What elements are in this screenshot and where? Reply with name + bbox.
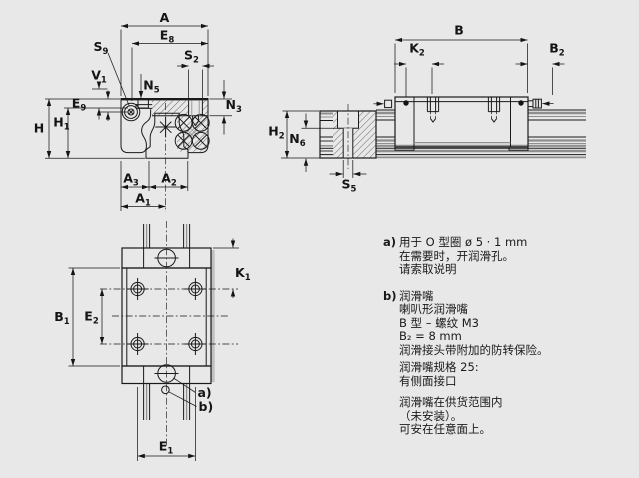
dim-label-S9: S9	[94, 39, 109, 57]
dim-label-A3: A3	[123, 171, 139, 189]
dim-label-B2: B2	[549, 41, 565, 59]
top-carriage	[100, 248, 238, 394]
rail-end-section	[320, 104, 376, 169]
note-b-line: B₂ = 8 mm	[399, 330, 637, 344]
catalog-dimension-drawing-page: A E8 S9 S2 V1 N5 N3 E9 H H1 A3 A2 A1	[0, 0, 639, 478]
side-view: B K2 B2 H2 N6 S5	[268, 23, 586, 195]
mounting-screw-1	[427, 97, 438, 122]
dim-label-N3: N3	[226, 97, 242, 115]
note-b-spec-line: 润滑嘴规格 25:	[399, 361, 637, 375]
callout-a-label: a)	[198, 385, 212, 400]
note-b-scope-line: 润滑嘴在供货范围内	[399, 396, 637, 410]
top-dim-labels: B1 E2 K1 E1 a) b)	[54, 265, 250, 457]
dim-label-E8: E8	[160, 28, 175, 46]
note-a-marker: a)	[383, 236, 399, 277]
note-b-spec-line: 有侧面接口	[399, 375, 637, 389]
dim-label-H2: H2	[268, 124, 284, 142]
top-rail	[144, 221, 190, 448]
note-b-scope-line: （未安装）。	[399, 410, 637, 424]
side-carriage	[374, 97, 554, 150]
callout-b-label: b)	[199, 399, 214, 414]
dim-label-A: A	[160, 10, 170, 25]
dim-label-E2: E2	[84, 309, 99, 327]
side-port-circle	[162, 386, 170, 394]
note-a-line: 在需要时，开润滑孔。	[399, 250, 637, 264]
dim-label-K1: K1	[235, 265, 251, 283]
top-view: B1 E2 K1 E1 a) b)	[54, 221, 250, 461]
note-b: b) 润滑嘴 喇叭形润滑嘴 B 型 – 螺纹 M3 B₂ = 8 mm 润滑接头…	[383, 290, 637, 358]
note-b-marker: b)	[383, 290, 399, 358]
side-dim-labels: B K2 B2 H2 N6 S5	[268, 23, 565, 195]
dim-label-N5: N5	[143, 78, 159, 96]
reference-hole-right	[518, 100, 523, 105]
dim-label-H1: H1	[53, 115, 69, 133]
front-section-view: A E8 S9 S2 V1 N5 N3 E9 H H1 A3 A2 A1	[34, 10, 242, 212]
side-lube-port	[385, 100, 392, 107]
note-b-line: B 型 – 螺纹 M3	[399, 317, 637, 331]
notes-panel: a) 用于 O 型圈 ø 5 · 1 mm 在需要时，开润滑孔。 请索取说明 b…	[383, 236, 637, 437]
mounting-screw-2	[488, 97, 499, 122]
note-b-scope-line: 可安在任意面上。	[399, 423, 637, 437]
dim-label-H: H	[34, 121, 44, 136]
dim-label-N6: N6	[289, 131, 305, 149]
dim-label-B: B	[454, 23, 464, 38]
dim-label-A2: A2	[161, 171, 177, 189]
note-b-scope: 润滑嘴在供货范围内 （未安装）。 可安在任意面上。	[399, 396, 637, 437]
note-b-spec: 润滑嘴规格 25: 有侧面接口	[399, 361, 637, 388]
dim-label-S5: S5	[342, 177, 357, 195]
dim-label-E1: E1	[159, 439, 174, 457]
note-b-line: 喇叭形润滑嘴	[399, 303, 637, 317]
reference-hole-left	[403, 100, 408, 105]
dim-label-E9: E9	[72, 96, 87, 114]
front-dim-labels: A E8 S9 S2 V1 N5 N3 E9 H H1 A3 A2 A1	[34, 10, 242, 209]
note-a: a) 用于 O 型圈 ø 5 · 1 mm 在需要时，开润滑孔。 请索取说明	[383, 236, 637, 277]
dim-label-A1: A1	[135, 191, 151, 209]
dim-label-K2: K2	[409, 41, 425, 59]
note-a-line: 请索取说明	[399, 263, 637, 277]
dim-label-B1: B1	[54, 309, 70, 327]
note-a-line: 用于 O 型圈 ø 5 · 1 mm	[399, 236, 637, 250]
lube-nipple	[528, 99, 541, 108]
note-b-line: 润滑嘴	[399, 290, 637, 304]
note-b-line: 润滑接头带附加的防转保险。	[399, 344, 637, 358]
dim-label-S2: S2	[184, 48, 199, 66]
